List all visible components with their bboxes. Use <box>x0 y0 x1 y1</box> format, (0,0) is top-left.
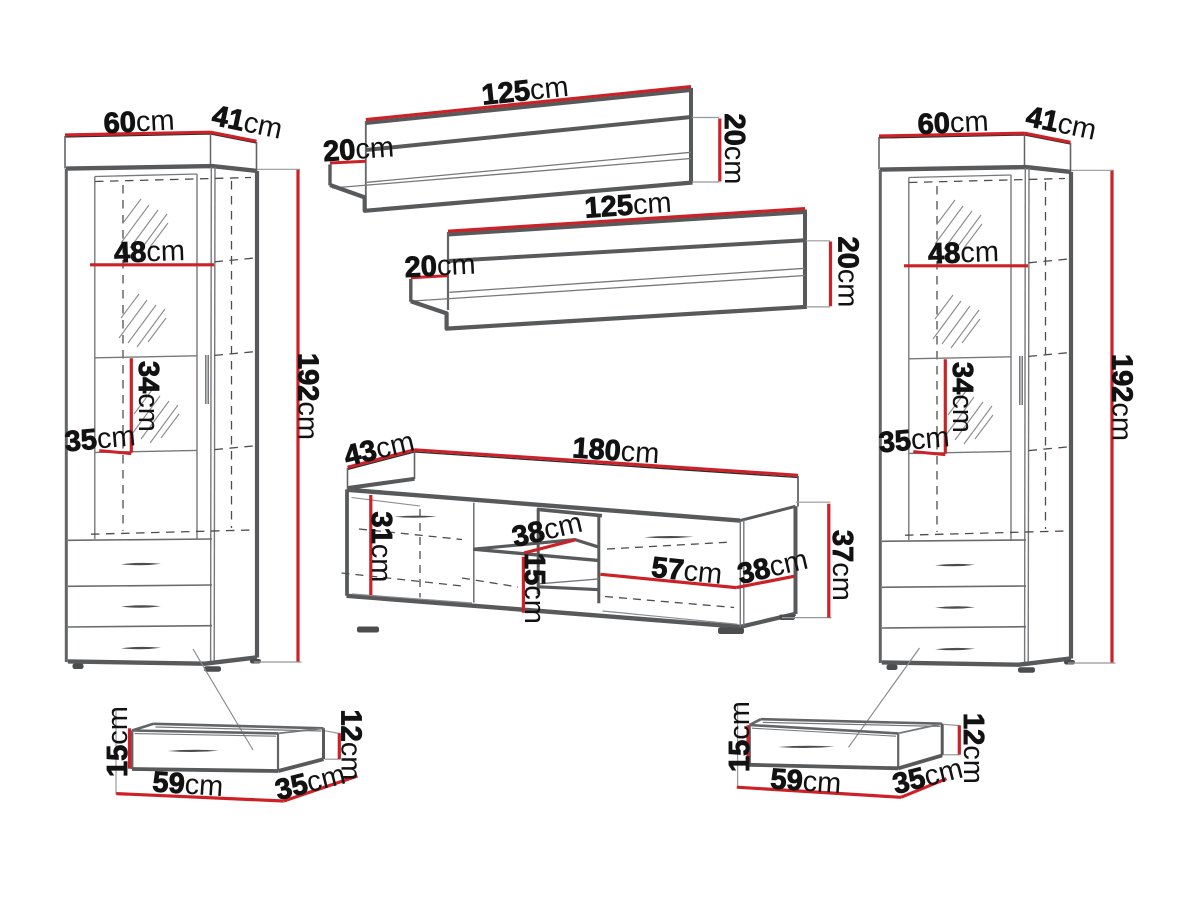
svg-text:20cm: 20cm <box>832 237 864 308</box>
svg-text:37cm: 37cm <box>826 530 858 601</box>
svg-text:15cm: 15cm <box>518 553 550 624</box>
svg-text:59cm: 59cm <box>769 763 842 800</box>
svg-text:15cm: 15cm <box>102 706 134 777</box>
svg-text:12cm: 12cm <box>957 713 989 784</box>
svg-text:12cm: 12cm <box>335 710 367 781</box>
svg-text:180cm: 180cm <box>571 432 660 470</box>
svg-text:59cm: 59cm <box>151 766 224 803</box>
svg-text:31cm: 31cm <box>365 512 397 583</box>
svg-text:20cm: 20cm <box>718 114 750 185</box>
svg-text:15cm: 15cm <box>724 701 756 772</box>
svg-text:20cm: 20cm <box>322 131 395 168</box>
svg-text:20cm: 20cm <box>404 248 477 284</box>
svg-text:125cm: 125cm <box>584 187 673 225</box>
